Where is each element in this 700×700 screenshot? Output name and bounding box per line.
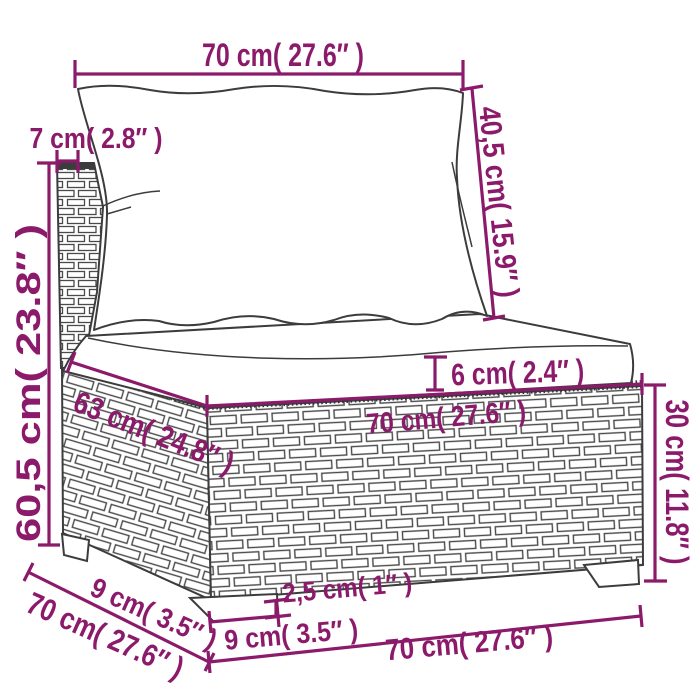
label-base-height: 30 cm( 11.8″ ) [659, 400, 695, 565]
label-top-width: 70 cm( 27.6″ ) [202, 37, 364, 73]
label-back-cushion-height: 40,5 cm( 15.9″ ) [472, 105, 525, 299]
label-seat-cushion-thickness: 6 cm( 2.4″ ) [451, 353, 585, 393]
sofa-dimension-drawing: 70 cm( 27.6″ ) 7 cm( 2.8″ ) 40,5 cm( 15.… [0, 0, 700, 700]
label-back-thickness: 7 cm( 2.8″ ) [30, 123, 163, 155]
label-total-height: 60,5 cm( 23.8″ ) [10, 224, 48, 542]
label-bottom-width: 70 cm( 27.6″ ) [384, 620, 554, 668]
dimension-diagram: 70 cm( 27.6″ ) 7 cm( 2.8″ ) 40,5 cm( 15.… [0, 0, 700, 700]
foot-front-right [584, 560, 639, 587]
back-post-top [57, 163, 95, 169]
